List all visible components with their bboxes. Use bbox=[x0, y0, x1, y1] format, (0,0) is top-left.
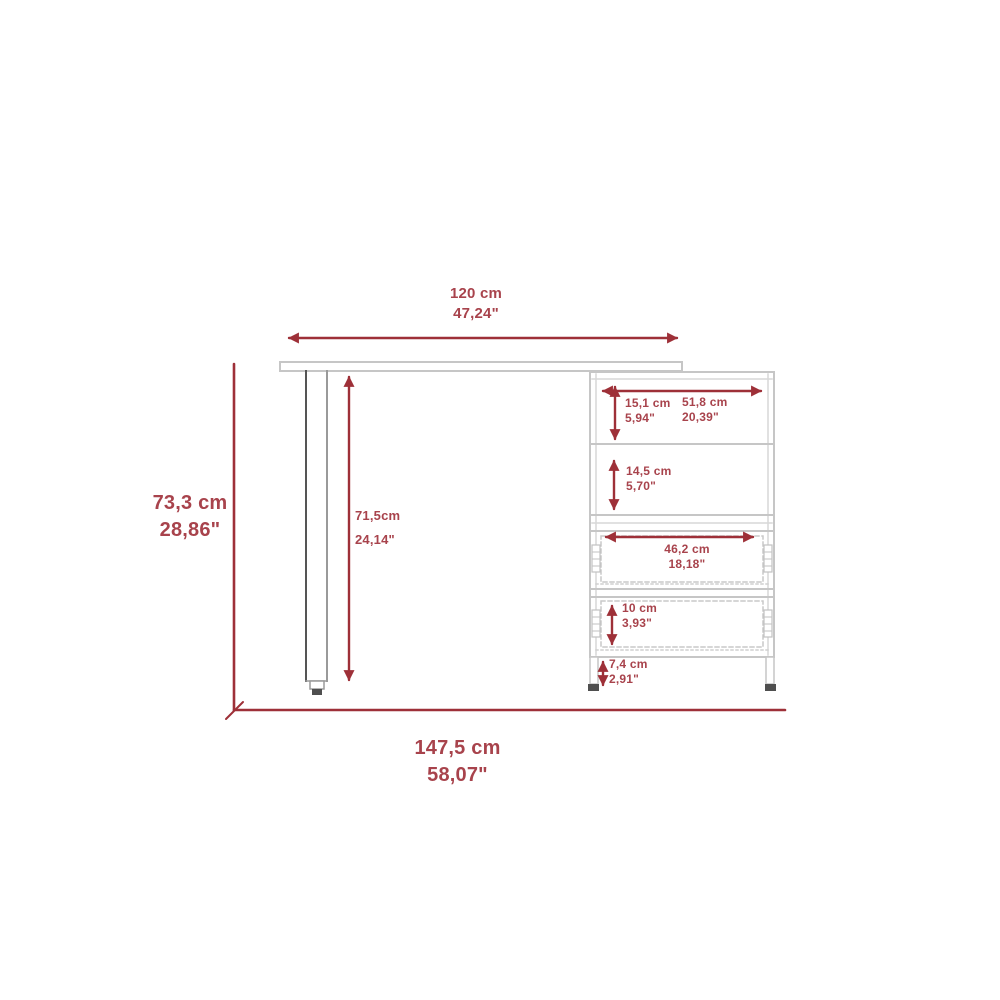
shelf-width-cm: 51,8 cm bbox=[682, 395, 727, 410]
drawer-2-left-slide bbox=[592, 610, 600, 637]
dim-label-total-height: 73,3 cm 28,86" bbox=[134, 490, 246, 544]
total-width-inches: 58,07" bbox=[385, 762, 530, 789]
desk-top bbox=[280, 362, 682, 371]
drawer-2-right-slide bbox=[764, 610, 772, 637]
desk-width-cm: 120 cm bbox=[396, 284, 556, 304]
drawer-width-inches: 18,18" bbox=[630, 557, 744, 572]
dim-label-shelf2-height: 14,5 cm 5,70" bbox=[626, 464, 671, 494]
dim-label-shelf-width: 51,8 cm 20,39" bbox=[682, 395, 727, 425]
dim-label-total-width: 147,5 cm 58,07" bbox=[385, 735, 530, 789]
shelf1-height-cm: 15,1 cm bbox=[625, 396, 670, 411]
drawer-height-inches: 3,93" bbox=[622, 616, 657, 631]
drawer-1-right-slide bbox=[764, 545, 772, 572]
foot-height-cm: 7,4 cm bbox=[609, 657, 648, 672]
desk-leg-glide bbox=[312, 689, 322, 695]
dim-label-desk-width: 120 cm 47,24" bbox=[396, 284, 556, 325]
desk-leg bbox=[306, 371, 327, 695]
leg-height-inches: 24,14" bbox=[355, 528, 400, 552]
dimension-diagram: 120 cm 47,24" 73,3 cm 28,86" 147,5 cm 58… bbox=[0, 0, 1000, 1000]
foot-height-inches: 2,91" bbox=[609, 672, 648, 687]
total-height-inches: 28,86" bbox=[134, 517, 246, 544]
shelf-width-inches: 20,39" bbox=[682, 410, 727, 425]
dim-label-foot-height: 7,4 cm 2,91" bbox=[609, 657, 648, 687]
desk-leg-foot bbox=[310, 681, 324, 689]
drawer-1-left-slide bbox=[592, 545, 600, 572]
leg-height-cm: 71,5cm bbox=[355, 504, 400, 528]
shelf2-height-inches: 5,70" bbox=[626, 479, 671, 494]
drawer-height-cm: 10 cm bbox=[622, 601, 657, 616]
dim-label-drawer-width: 46,2 cm 18,18" bbox=[630, 542, 744, 572]
drawer-width-cm: 46,2 cm bbox=[630, 542, 744, 557]
shelf1-height-inches: 5,94" bbox=[625, 411, 670, 426]
dim-label-leg-height: 71,5cm 24,14" bbox=[355, 504, 400, 552]
desk-width-inches: 47,24" bbox=[396, 304, 556, 324]
total-width-cm: 147,5 cm bbox=[385, 735, 530, 762]
total-height-cm: 73,3 cm bbox=[134, 490, 246, 517]
shelf2-height-cm: 14,5 cm bbox=[626, 464, 671, 479]
dim-label-drawer-height: 10 cm 3,93" bbox=[622, 601, 657, 631]
dim-label-shelf1-height: 15,1 cm 5,94" bbox=[625, 396, 670, 426]
